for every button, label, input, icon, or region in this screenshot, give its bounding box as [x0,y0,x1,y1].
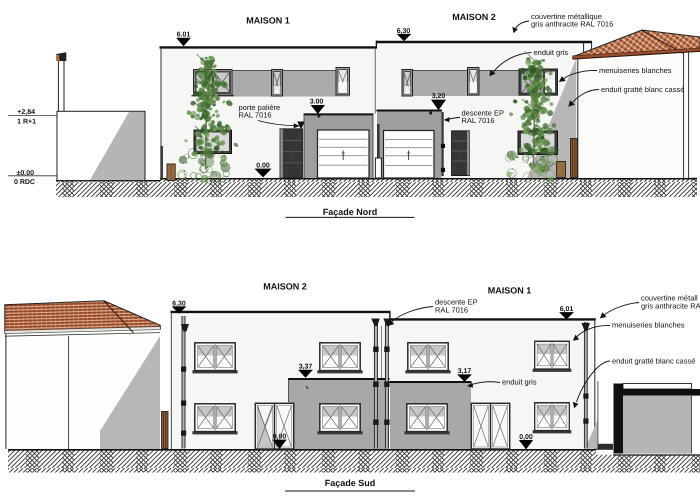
svg-text:6,01: 6,01 [560,306,574,313]
svg-text:gris anthracite RA: gris anthracite RA [641,302,700,311]
svg-text:0 RDC: 0 RDC [14,179,35,186]
svg-text:Façade Sud: Façade Sud [325,478,376,488]
svg-text:MAISON 2: MAISON 2 [263,282,307,292]
svg-text:MAISON 2: MAISON 2 [452,12,496,22]
svg-text:1 R+1: 1 R+1 [17,119,36,126]
svg-text:3,37: 3,37 [299,364,313,371]
svg-text:RAL 7016: RAL 7016 [462,116,495,125]
svg-text:RAL 7016: RAL 7016 [435,306,468,315]
svg-text:6,30: 6,30 [172,300,186,307]
svg-text:0,00: 0,00 [273,434,287,441]
svg-text:MAISON 1: MAISON 1 [488,286,532,296]
svg-text:Façade Nord: Façade Nord [323,207,378,217]
svg-text:6.01: 6.01 [177,32,191,39]
svg-text:enduit gratté blanc cassé: enduit gratté blanc cassé [612,357,695,366]
svg-text:RAL 7016: RAL 7016 [239,110,272,119]
svg-text:MAISON 1: MAISON 1 [246,16,290,26]
svg-text:6,30: 6,30 [397,28,411,35]
svg-text:3,17: 3,17 [458,368,472,375]
svg-text:3,20: 3,20 [432,93,446,100]
svg-text:menuiseries blanches: menuiseries blanches [612,321,685,330]
svg-text:enduit gris: enduit gris [534,48,569,57]
svg-text:enduit gris: enduit gris [502,378,537,387]
svg-text:0,00: 0,00 [519,434,533,441]
svg-text:3.00: 3.00 [310,99,324,106]
svg-text:enduit gratté blanc cassé: enduit gratté blanc cassé [601,85,684,94]
svg-text:0.00: 0.00 [256,162,270,169]
svg-text:+2,84: +2,84 [17,109,35,116]
svg-text:gris anthracite RAL 7016: gris anthracite RAL 7016 [531,20,613,29]
svg-text:menuiseries blanches: menuiseries blanches [599,66,672,75]
